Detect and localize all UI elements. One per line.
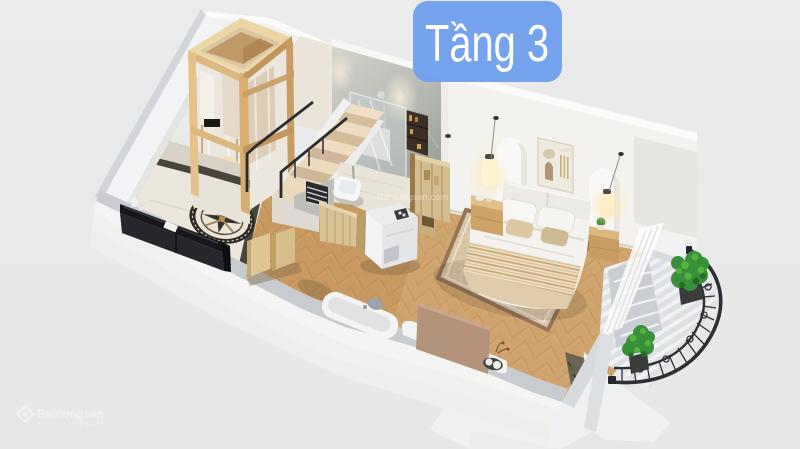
svg-text:Batdongsan: Batdongsan <box>37 409 103 421</box>
svg-text:com.vn by PropertyGuru: com.vn by PropertyGuru <box>38 422 103 428</box>
svg-text:Tầng 3: Tầng 3 <box>425 15 549 73</box>
svg-text:Batdongsan.com: Batdongsan.com <box>377 192 448 203</box>
